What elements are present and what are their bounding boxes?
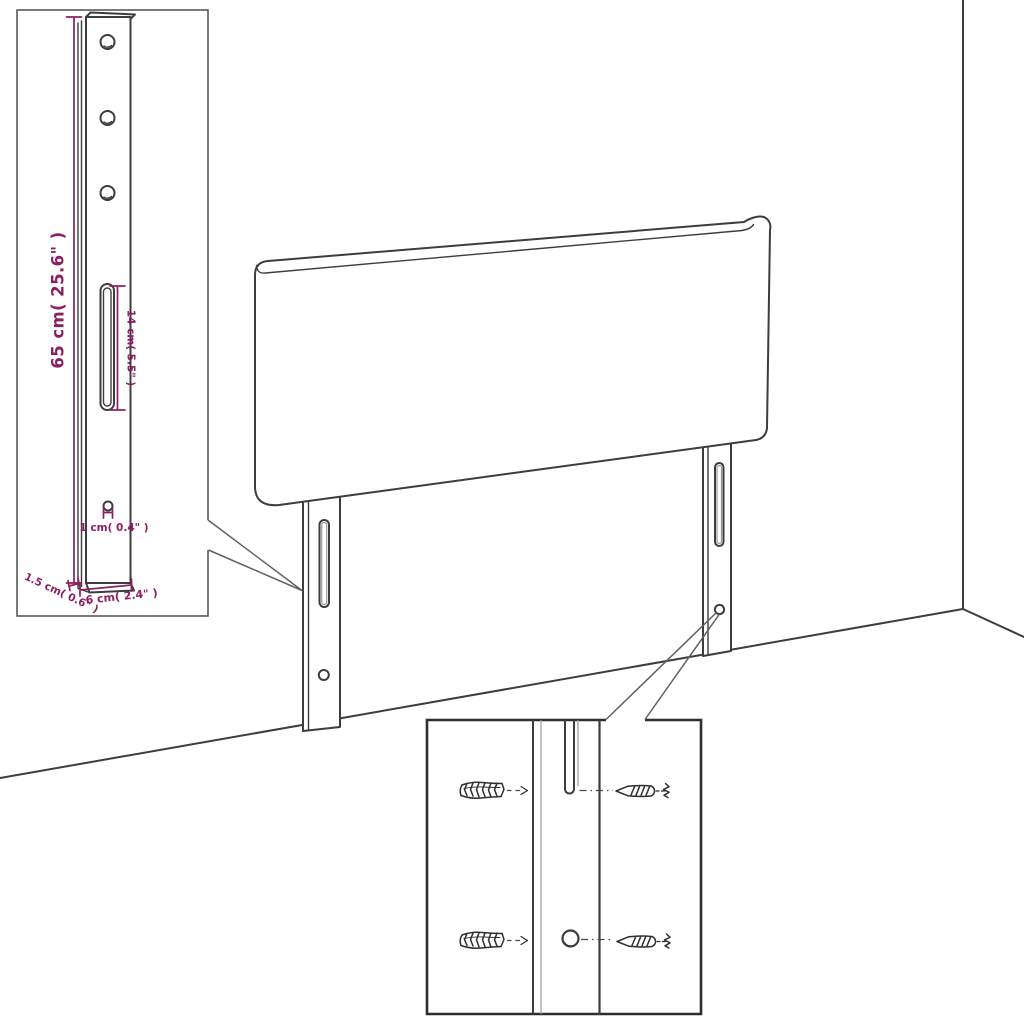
bracket-front-face [86, 17, 131, 583]
headboard-panel [255, 217, 770, 506]
assembly-diagram-page: 65 cm( 25.6" ) 14 cm( 5.5" ) 1 cm( 0.4" … [0, 0, 1024, 1024]
slot-dimension-label: 14 cm( 5.5" ) [125, 310, 137, 386]
callout-leader-line [645, 614, 720, 720]
hardware-detail-inset [427, 720, 701, 1014]
floor-line-right [963, 609, 1024, 637]
assembly-diagram: 65 cm( 25.6" ) 14 cm( 5.5" ) 1 cm( 0.4" … [0, 0, 1024, 1024]
hole-dimension-label: 1 cm( 0.4" ) [79, 522, 148, 534]
mounting-bracket-detail [78, 13, 135, 593]
callout-leader-line [606, 613, 717, 720]
bracket-inset-leader-lines [208, 520, 302, 591]
headboard-left-leg [303, 468, 340, 731]
height-dimension-label: 65 cm( 25.6" ) [49, 231, 68, 368]
panel-outline [255, 217, 770, 506]
bracket-detail-inset: 65 cm( 25.6" ) 14 cm( 5.5" ) 1 cm( 0.4" … [17, 10, 208, 616]
dimension-bracket-height: 65 cm( 25.6" ) [49, 17, 82, 583]
